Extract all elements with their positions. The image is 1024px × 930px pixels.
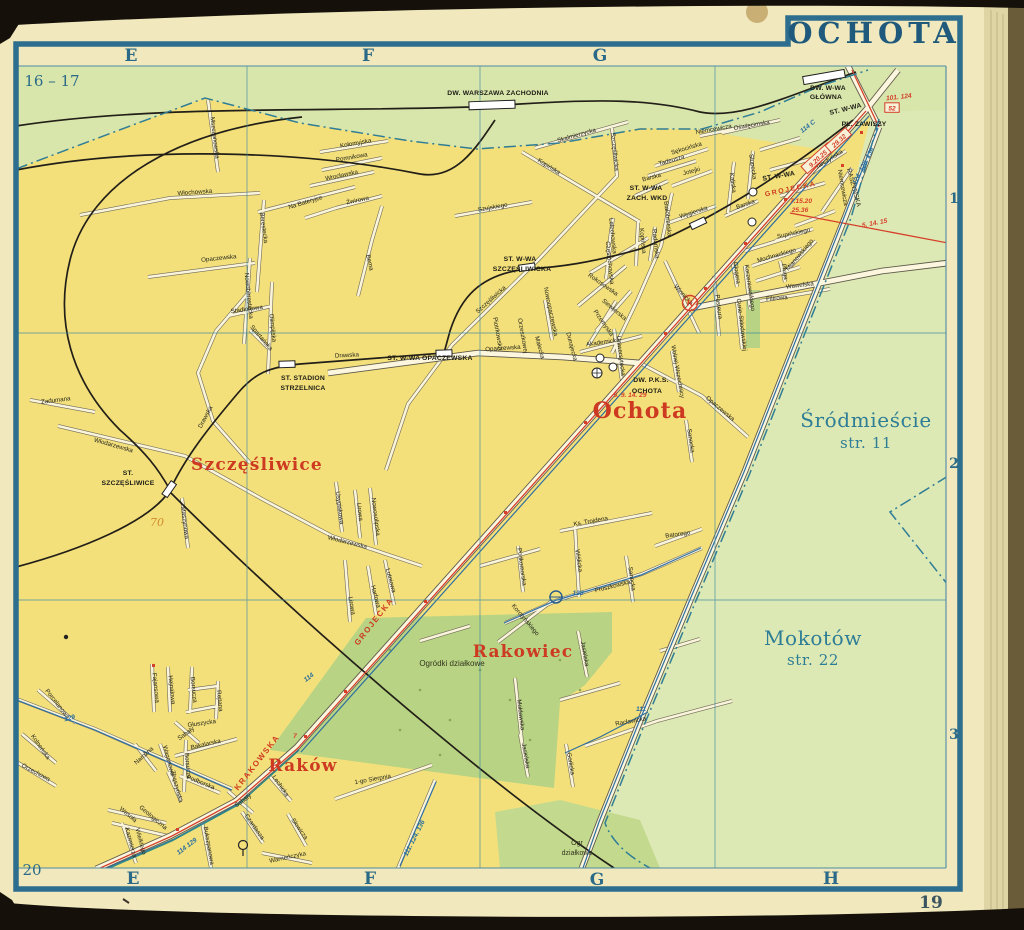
svg-text:ST. W-WA OPACZEWSKA: ST. W-WA OPACZEWSKA [387,355,472,362]
svg-text:ST. W-WA: ST. W-WA [630,185,663,192]
station-label: OCHOTA [632,388,662,395]
neighbor-label: Mokotów [764,626,862,650]
svg-text:Rakowiec: Rakowiec [473,642,574,662]
svg-text:DW. W-WA: DW. W-WA [810,85,846,92]
station-label: GŁÓWNA [810,92,842,101]
grid-letter-bottom-f: F [364,869,376,889]
station-symbol [279,361,295,368]
svg-text:Drawska: Drawska [335,351,360,359]
poi-label: Ogr [571,840,583,847]
svg-text:111: 111 [636,706,646,713]
street-label: Drawska [335,351,360,359]
svg-text:52: 52 [888,106,896,113]
station-symbol [469,100,515,110]
svg-text:25.36: 25.36 [791,207,809,214]
grid-number-3: 3 [949,727,959,743]
svg-text:STRZELNICA: STRZELNICA [280,385,325,392]
route-label: 111 [636,706,646,713]
svg-text:GŁÓWNA: GŁÓWNA [810,92,842,101]
map-canvas: MszczonowskaKołomyjskaPomnikowaWrocławsk… [0,0,1024,930]
svg-text:ST. STADION: ST. STADION [281,375,325,382]
svg-text:PL. ZAWISZY: PL. ZAWISZY [842,121,887,128]
station-label: STRZELNICA [280,385,325,392]
neighbor-label: str. 11 [840,434,892,452]
grid-letter-top-e: E [125,46,138,66]
svg-text:Raków: Raków [268,756,337,776]
map-interior: MszczonowskaKołomyjskaPomnikowaWrocławsk… [14,66,948,873]
grid-number-2: 2 [949,456,959,472]
svg-text:Szczęśliwice: Szczęśliwice [191,455,323,475]
route-label: 52 [885,103,899,113]
neighbor-label: str. 22 [787,651,839,669]
stop-circle [596,354,604,362]
district-label: Ochota [593,398,688,424]
district-label: Raków [268,756,337,776]
neighbor-label: Śródmieście [800,407,932,432]
atlas-page-scan: MszczonowskaKołomyjskaPomnikowaWrocławsk… [0,0,1024,930]
map-title: OCHOTA [787,16,961,50]
svg-text:7: 7 [293,733,297,740]
station-label: SZCZĘŚLIWICKA [493,264,551,273]
svg-text:DW. P.K.S.: DW. P.K.S. [633,377,669,384]
grid-letter-bottom-h: H [823,869,839,889]
poi-label: działkowe [562,850,593,857]
svg-text:70: 70 [150,516,164,529]
grid-letter-bottom-e: E [127,869,140,889]
grid-letter-bottom-g: G [590,870,605,890]
route-label: 7.15.20 [790,198,812,205]
svg-text:ZACH. WKD: ZACH. WKD [627,195,668,202]
station-label: ST. W-WA [504,256,537,263]
grid-letter-top-g: G [593,46,608,66]
book-edge [1008,0,1024,930]
point-mark [64,635,68,639]
grid-number-1: 1 [949,191,959,207]
station-label: ST. W-WA OPACZEWSKA [387,355,472,362]
stop-circle [609,363,617,371]
svg-text:ST. W-WA: ST. W-WA [504,256,537,263]
station-label: ST. W-WA [630,185,663,192]
station-label: PL. ZAWISZY [842,121,887,128]
svg-text:Ochota: Ochota [593,398,688,424]
station-label: ST. STADION [281,375,325,382]
svg-text:7.15.20: 7.15.20 [790,198,812,205]
sheet-ref-bottom-left: 20 [22,861,41,879]
station-label: ZACH. WKD [627,195,668,202]
svg-text:ST.: ST. [123,470,133,477]
svg-text:128: 128 [572,590,583,597]
svg-text:OCHOTA: OCHOTA [632,388,662,395]
route-label: 128 [572,590,583,597]
stop-circle [749,188,757,196]
stop-circle [748,218,756,226]
page-number: 19 [919,893,943,913]
station-label: DW. W-WA [810,85,846,92]
poi-label: 70 [150,516,164,529]
svg-text:SZCZĘŚLIWICE: SZCZĘŚLIWICE [102,478,155,487]
svg-text:Śródmieście: Śródmieście [800,407,932,432]
svg-text:działkowe: działkowe [562,850,593,857]
station-label: DW. P.K.S. [633,377,669,384]
svg-text:Mokotów: Mokotów [764,626,862,650]
svg-text:DW. WARSZAWA ZACHODNIA: DW. WARSZAWA ZACHODNIA [447,90,549,97]
station-label: SZCZĘŚLIWICE [102,478,155,487]
station-label: ST. [123,470,133,477]
route-label: 25.36 [791,207,809,214]
district-label: Szczęśliwice [191,455,323,475]
station-label: DW. WARSZAWA ZACHODNIA [447,90,549,97]
grid-letter-top-f: F [362,46,374,66]
district-label: Rakowiec [473,642,574,662]
route-label: 7 [293,733,297,740]
svg-text:Ogr: Ogr [571,840,583,847]
sheet-ref-top-left: 16 – 17 [24,72,79,90]
svg-text:str. 22: str. 22 [787,651,839,669]
svg-text:SZCZĘŚLIWICKA: SZCZĘŚLIWICKA [493,264,551,273]
svg-text:str. 11: str. 11 [840,434,892,452]
